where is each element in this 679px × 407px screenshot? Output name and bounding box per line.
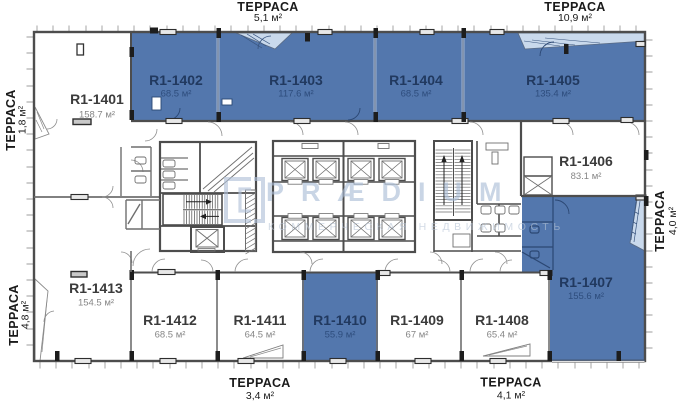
svg-text:5,1 м²: 5,1 м² xyxy=(254,12,283,24)
svg-text:PRÆDIUM: PRÆDIUM xyxy=(266,177,519,207)
svg-text:КОММЕРЧЕСКАЯ НЕДВИЖИМОСТЬ: КОММЕРЧЕСКАЯ НЕДВИЖИМОСТЬ xyxy=(268,221,565,233)
svg-text:3,4 м²: 3,4 м² xyxy=(246,390,275,402)
svg-text:68.5 м²: 68.5 м² xyxy=(161,89,192,100)
svg-text:4,8 м²: 4,8 м² xyxy=(20,300,32,329)
svg-text:67 м²: 67 м² xyxy=(406,330,429,341)
svg-text:ТЕРРАСА: ТЕРРАСА xyxy=(653,190,667,252)
svg-text:R1-1407: R1-1407 xyxy=(559,274,613,290)
svg-text:68.5 м²: 68.5 м² xyxy=(155,330,186,341)
svg-text:R1-1405: R1-1405 xyxy=(526,72,580,88)
svg-text:68.5 м²: 68.5 м² xyxy=(401,89,432,100)
svg-text:R1-1408: R1-1408 xyxy=(475,312,529,328)
svg-text:4,1 м²: 4,1 м² xyxy=(497,390,526,402)
svg-text:64.5 м²: 64.5 м² xyxy=(245,330,276,341)
svg-text:ТЕРРАСА: ТЕРРАСА xyxy=(229,376,291,390)
svg-text:R1-1403: R1-1403 xyxy=(269,72,323,88)
svg-text:R1-1412: R1-1412 xyxy=(143,312,197,328)
svg-text:155.6 м²: 155.6 м² xyxy=(568,291,604,302)
svg-text:ТЕРРАСА: ТЕРРАСА xyxy=(480,376,542,390)
svg-text:4,0 м²: 4,0 м² xyxy=(667,206,679,235)
svg-text:R1-1409: R1-1409 xyxy=(390,312,444,328)
svg-text:R1-1402: R1-1402 xyxy=(149,72,203,88)
svg-text:117.6 м²: 117.6 м² xyxy=(278,89,313,100)
svg-text:R1-1413: R1-1413 xyxy=(69,280,123,296)
svg-text:R1-1411: R1-1411 xyxy=(234,312,287,328)
svg-text:65.4 м²: 65.4 м² xyxy=(487,330,518,341)
svg-text:10,9 м²: 10,9 м² xyxy=(558,12,593,24)
svg-text:R1-1406: R1-1406 xyxy=(559,153,613,169)
svg-text:R1-1410: R1-1410 xyxy=(313,312,367,328)
svg-text:1,8 м²: 1,8 м² xyxy=(17,105,29,134)
svg-text:83.1 м²: 83.1 м² xyxy=(571,171,602,182)
svg-text:135.4 м²: 135.4 м² xyxy=(535,89,571,100)
svg-text:154.5 м²: 154.5 м² xyxy=(78,298,114,309)
svg-text:R1-1404: R1-1404 xyxy=(389,72,443,88)
svg-text:55.9 м²: 55.9 м² xyxy=(325,330,356,341)
svg-text:R1-1401: R1-1401 xyxy=(70,91,124,107)
